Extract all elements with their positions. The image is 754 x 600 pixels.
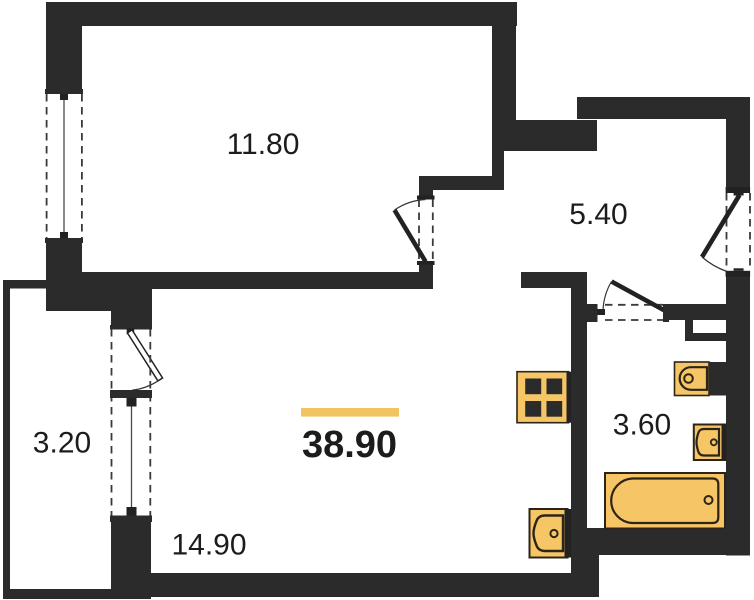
svg-text:3.60: 3.60 — [613, 409, 671, 442]
svg-text:5.40: 5.40 — [569, 198, 627, 231]
svg-text:38.90: 38.90 — [302, 424, 397, 466]
svg-text:14.90: 14.90 — [171, 529, 246, 562]
svg-text:3.20: 3.20 — [33, 427, 91, 460]
svg-text:11.80: 11.80 — [227, 128, 300, 161]
